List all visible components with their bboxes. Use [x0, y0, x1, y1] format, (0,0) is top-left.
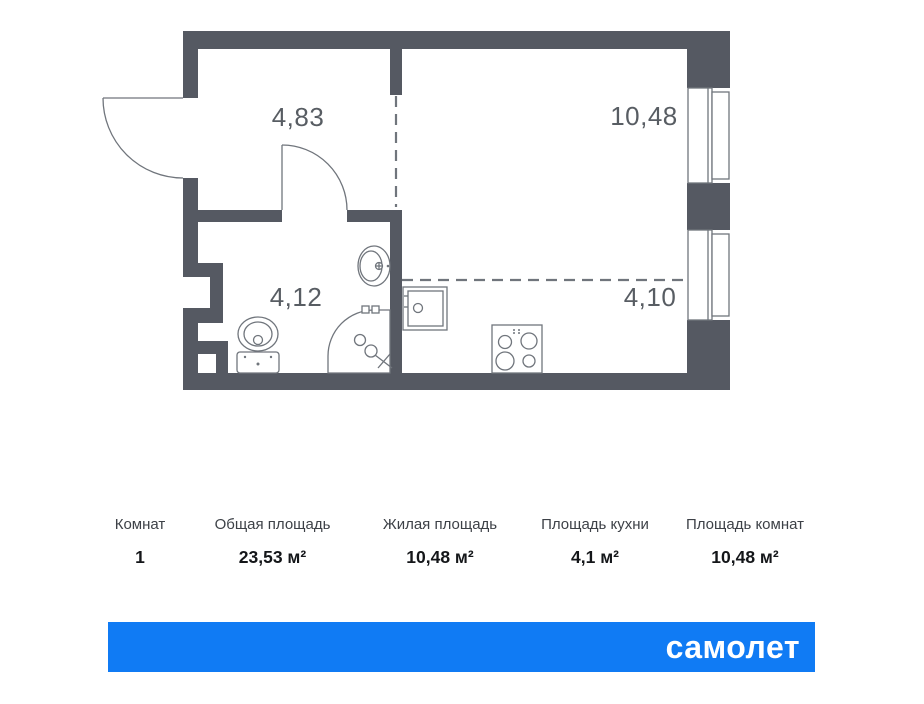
hallway-area-label: 4,83 — [272, 102, 325, 132]
shower-icon — [328, 306, 392, 373]
floorplan-drawing: 4,83 10,48 4,12 4,10 — [0, 0, 924, 500]
summary-value-living-area: 10,48 м² — [360, 547, 520, 568]
wall-left-lower — [183, 323, 198, 375]
window-kitchen-icon — [688, 230, 729, 320]
kitchen-sink-icon — [403, 287, 447, 330]
summary-value-rooms-area: 10,48 м² — [670, 547, 820, 568]
bathroom-area-label: 4,12 — [270, 282, 323, 312]
wall-toilet-stub-h — [198, 341, 228, 354]
wall-bathroom-top-right — [347, 210, 402, 222]
summary-header-rooms-area: Площадь комнат — [670, 516, 820, 533]
entrance-door-icon — [103, 98, 183, 178]
summary-value-total-area: 23,53 м² — [185, 547, 360, 568]
bathroom-sink-icon — [358, 246, 390, 286]
wall-shaft-step-bottom — [183, 308, 223, 323]
stove-icon — [492, 325, 542, 373]
samolet-logo-banner: самолет — [108, 622, 815, 672]
bathroom-door-icon — [282, 145, 347, 210]
summary-header-total-area: Общая площадь — [185, 516, 360, 533]
wall-shaft-step-top — [183, 263, 223, 277]
summary-col-rooms-area: Площадь комнат 10,48 м² — [670, 516, 820, 568]
kitchen-area-label: 4,10 — [624, 282, 677, 312]
summary-value-rooms: 1 — [95, 547, 185, 568]
samolet-logo-text: самолет — [666, 622, 815, 672]
living-room-area-label: 10,48 — [610, 101, 678, 131]
wall-toilet-stub-v — [216, 354, 228, 374]
wall-left-mid — [183, 178, 198, 265]
summary-col-rooms: Комнат 1 — [95, 516, 185, 568]
room-labels: 4,83 10,48 4,12 4,10 — [270, 101, 678, 312]
summary-header-living-area: Жилая площадь — [360, 516, 520, 533]
wall-left-upper — [183, 49, 198, 98]
summary-col-living-area: Жилая площадь 10,48 м² — [360, 516, 520, 568]
wall-shaft-vertical — [210, 277, 223, 310]
summary-value-kitchen-area: 4,1 м² — [520, 547, 670, 568]
apartment-summary-table: Комнат 1 Общая площадь 23,53 м² Жилая пл… — [95, 516, 820, 568]
summary-header-rooms: Комнат — [95, 516, 185, 533]
wall-right-bottom-corner — [687, 320, 730, 390]
summary-col-kitchen-area: Площадь кухни 4,1 м² — [520, 516, 670, 568]
wall-right-top-corner — [687, 31, 730, 88]
window-living-room-icon — [688, 88, 729, 183]
wall-bottom — [183, 373, 690, 390]
wall-bathroom-east — [390, 210, 402, 373]
floorplan-page: 4,83 10,48 4,12 4,10 Комнат 1 Общая площ… — [0, 0, 924, 704]
summary-header-kitchen-area: Площадь кухни — [520, 516, 670, 533]
wall-partition-hall-living — [390, 49, 402, 95]
wall-top — [183, 31, 730, 49]
toilet-icon — [237, 317, 279, 373]
wall-right-between-windows — [687, 183, 730, 230]
summary-col-total-area: Общая площадь 23,53 м² — [185, 516, 360, 568]
wall-bathroom-top-left — [198, 210, 282, 222]
